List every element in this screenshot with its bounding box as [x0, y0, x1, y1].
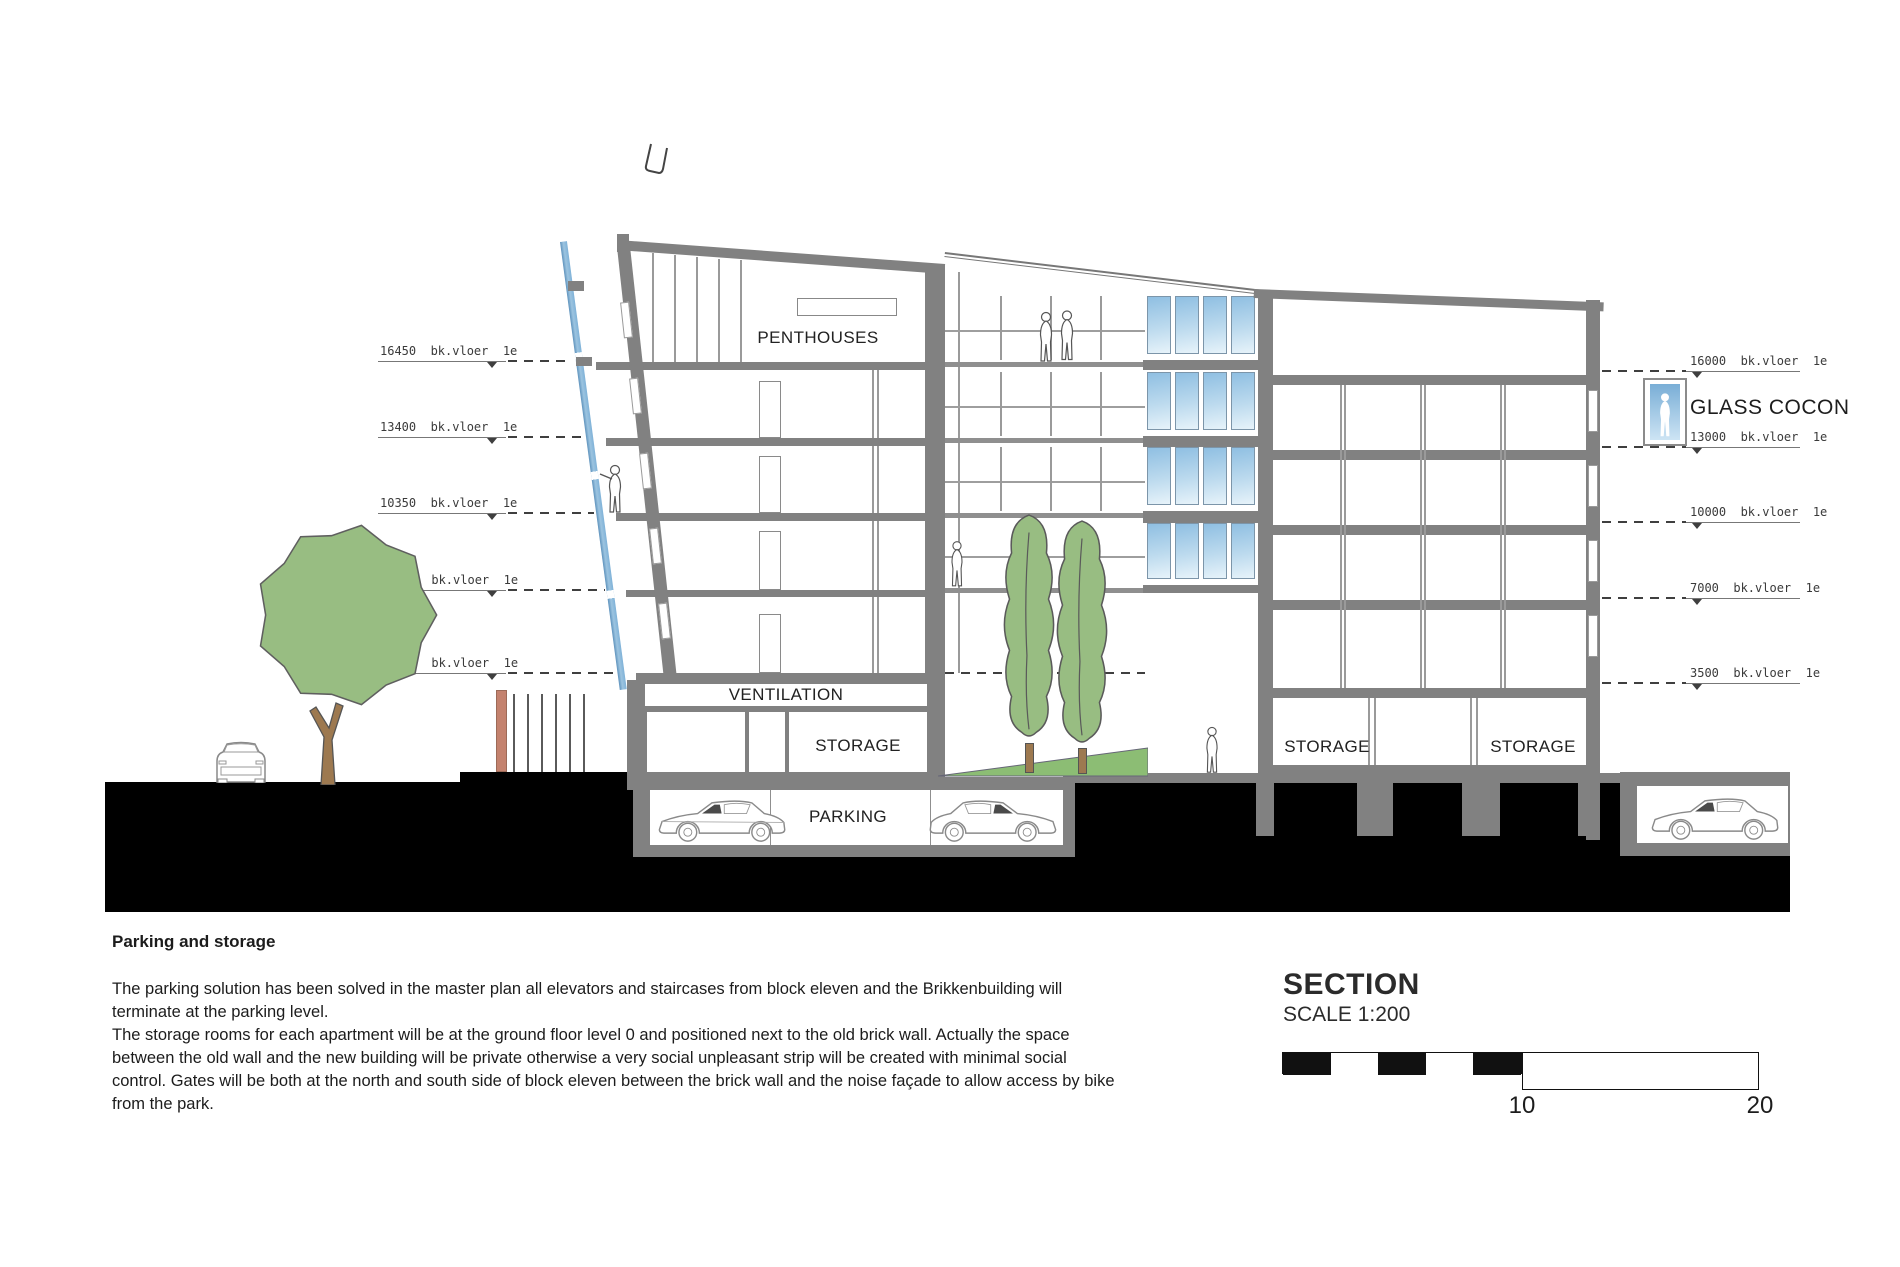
fence-bar [527, 694, 529, 772]
notes-paragraph: The parking solution has been solved in … [112, 978, 1252, 1116]
glass-panel [1175, 523, 1199, 579]
car [1648, 792, 1783, 840]
level-marker-line [1686, 447, 1800, 448]
partition-line [877, 370, 879, 438]
gallery-edge-line [958, 272, 960, 673]
floor-slab [1143, 585, 1262, 593]
fence-bar [569, 694, 571, 772]
glass-panel [1147, 296, 1171, 354]
partition-line [1470, 698, 1472, 765]
partition-line [877, 521, 879, 590]
glass-panel [1203, 447, 1227, 505]
level-marker-label: 13000 bk.vloer 1e [1690, 430, 1827, 444]
glass-panel [1147, 523, 1171, 579]
brick-wall-post [496, 690, 507, 772]
level-marker-line [1686, 683, 1800, 684]
scale-bar-segment [1522, 1052, 1759, 1090]
dashed-reference-line [1602, 370, 1686, 372]
storage-room [749, 712, 785, 772]
person-figure [1200, 726, 1224, 774]
level-marker-label: 13400 bk.vloer 1e [380, 420, 517, 434]
scale-label: SCALE 1:200 [1283, 1003, 1410, 1027]
level-marker-label: 16450 bk.vloer 1e [380, 344, 517, 358]
fence-bar [541, 694, 543, 772]
scale-bar [1282, 1052, 1522, 1074]
skylight [797, 298, 897, 316]
glass-panel [1147, 372, 1171, 430]
dashed-reference-line [508, 672, 616, 674]
scale-tick-label: 10 [1498, 1092, 1546, 1120]
ground [105, 782, 460, 912]
floor-slab [1258, 765, 1600, 775]
glass-panel [1175, 447, 1199, 505]
level-marker-arrow-icon [1692, 599, 1702, 605]
foundation-pier [1357, 783, 1393, 836]
door [759, 456, 781, 513]
stair-line [718, 259, 720, 362]
mullion-line [1500, 385, 1502, 688]
storage-room [647, 712, 745, 772]
level-marker-label: 10350 bk.vloer 1e [380, 496, 517, 510]
partition-line [872, 446, 874, 513]
person-figure [1056, 308, 1078, 363]
level-marker-arrow-icon [487, 438, 497, 444]
gallery-post [1050, 447, 1052, 511]
level-marker-arrow-icon [487, 362, 497, 368]
wall [925, 265, 945, 690]
ventilation-label: VENTILATION [729, 685, 844, 705]
floor-slab [1258, 688, 1600, 698]
mullion-line [1504, 385, 1506, 688]
partition-line [877, 597, 879, 673]
dashed-reference-line [1602, 597, 1686, 599]
dashed-reference-line [508, 436, 583, 438]
stair-line [740, 260, 742, 362]
level-marker-arrow-icon [487, 674, 497, 680]
floor-slab [636, 673, 945, 680]
scale-bar-segment [1283, 1053, 1331, 1075]
floor-slab [1143, 360, 1262, 370]
gallery-post [1000, 296, 1002, 360]
dashed-reference-line [508, 360, 572, 362]
parking-label: PARKING [809, 807, 887, 827]
gallery-post [1100, 372, 1102, 436]
person-figure [947, 538, 967, 590]
glass-panel [1175, 372, 1199, 430]
window-opening [1588, 465, 1598, 507]
dashed-reference-line [1602, 446, 1686, 448]
fence-bar [513, 694, 515, 772]
facade-anchor [568, 281, 584, 291]
partition-line [872, 370, 874, 438]
stair-line [652, 253, 654, 362]
door [759, 614, 781, 673]
scale-bar-segment [1426, 1053, 1474, 1075]
partition-line [872, 597, 874, 673]
notes-heading: Parking and storage [112, 932, 275, 952]
tree [248, 512, 444, 718]
partition-line [872, 521, 874, 590]
fence-bar [583, 694, 585, 772]
storage-label: STORAGE [1284, 737, 1370, 757]
storage-label: STORAGE [815, 736, 901, 756]
dashed-reference-line [1602, 521, 1686, 523]
storage-label: STORAGE [1490, 737, 1576, 757]
window-opening [1588, 615, 1598, 657]
window-opening [1588, 390, 1598, 432]
level-marker-arrow-icon [1692, 523, 1702, 529]
window-opening [1588, 540, 1598, 582]
level-marker-arrow-icon [487, 514, 497, 520]
floor-slab [606, 438, 945, 446]
level-marker-label: 16000 bk.vloer 1e [1690, 354, 1827, 368]
fence-bar [555, 694, 557, 772]
floor-slab [596, 362, 945, 370]
foundation-pier [1256, 783, 1274, 836]
floor-slab [1258, 375, 1600, 385]
glass-cocoon-label: GLASS COCON [1690, 396, 1850, 420]
facade-anchor [576, 357, 592, 366]
partition-line [1374, 698, 1376, 765]
floor-slab [626, 590, 945, 597]
glass-panel [1147, 447, 1171, 505]
mullion-line [1340, 385, 1342, 688]
level-marker-line [1686, 598, 1800, 599]
level-marker-label: 7000 bk.vloer 1e [1690, 581, 1820, 595]
mullion-line [1344, 385, 1346, 688]
person-figure [1035, 311, 1057, 363]
floor-slab [1258, 450, 1600, 460]
sketch-mark [642, 142, 672, 176]
scale-bar-segment [1331, 1053, 1379, 1075]
floor-slab [1258, 525, 1600, 535]
floor-slab [616, 513, 945, 521]
floor-slab [1258, 600, 1600, 610]
glass-panel [1231, 523, 1255, 579]
railing-line [945, 406, 1145, 408]
level-marker-label: 10000 bk.vloer 1e [1690, 505, 1827, 519]
person-figure [1655, 392, 1675, 438]
stair-line [674, 255, 676, 362]
level-marker-label: 3500 bk.vloer 1e [1690, 666, 1820, 680]
dashed-reference-line [1602, 682, 1686, 684]
stair-line [696, 257, 698, 362]
penthouses-label: PENTHOUSES [757, 328, 878, 348]
wall [1258, 295, 1273, 775]
level-marker-arrow-icon [1692, 448, 1702, 454]
ground [1063, 783, 1623, 912]
poplar-tree [1046, 518, 1118, 764]
partition-line [877, 446, 879, 513]
gallery-post [1050, 372, 1052, 436]
glass-panel [1203, 296, 1227, 354]
glass-panel [1175, 296, 1199, 354]
ground [460, 772, 635, 912]
scale-bar-segment [1473, 1053, 1521, 1075]
scale-tick-label: 20 [1736, 1092, 1784, 1120]
glass-panel [1231, 372, 1255, 430]
gallery-post [1000, 447, 1002, 511]
level-marker-arrow-icon [1692, 684, 1702, 690]
scale-bar-segment [1378, 1053, 1426, 1075]
railing-line [945, 481, 1145, 483]
door [759, 381, 781, 438]
ground [1620, 855, 1790, 912]
car [925, 794, 1060, 842]
glass-panel [1203, 372, 1227, 430]
level-marker-arrow-icon [1692, 372, 1702, 378]
dashed-reference-line [508, 589, 605, 591]
gallery-post [1100, 296, 1102, 360]
glass-panel [1203, 523, 1227, 579]
gallery-post [1100, 447, 1102, 511]
car [655, 794, 790, 842]
level-marker-line [1686, 371, 1800, 372]
section-drawing-page: 16450 bk.vloer 1e 13400 bk.vloer 1e 1035… [0, 0, 1900, 1267]
partition-line [1476, 698, 1478, 765]
mullion-line [1420, 385, 1422, 688]
door [759, 531, 781, 590]
floor-slab [1143, 436, 1262, 447]
person-figure [598, 464, 628, 514]
roof-line [944, 252, 1262, 295]
gallery-slab [945, 438, 1145, 443]
level-marker-line [1686, 522, 1800, 523]
foundation-pier [1462, 783, 1500, 836]
level-marker-arrow-icon [487, 591, 497, 597]
section-title: SECTION [1283, 968, 1420, 1002]
glass-panel [1231, 447, 1255, 505]
floor-slab [1143, 511, 1262, 523]
gallery-post [1000, 372, 1002, 436]
dashed-reference-line [508, 512, 594, 514]
car [212, 739, 270, 783]
mullion-line [1424, 385, 1426, 688]
ground [635, 857, 1075, 912]
glass-panel [1231, 296, 1255, 354]
